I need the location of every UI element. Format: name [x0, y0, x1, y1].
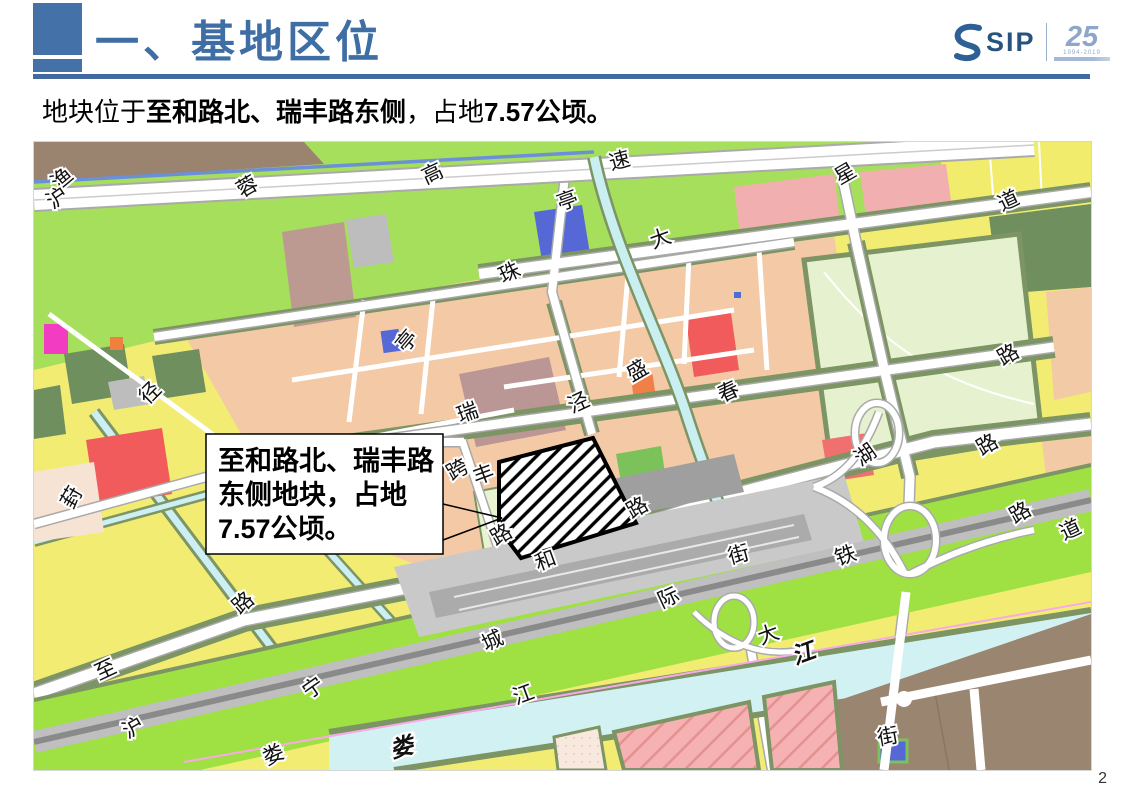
- land-use-map: 至和路北、瑞丰路东侧地块，占地7.57公顷。 渔沪蓉高速亭星道大珠亭路径葑瑞泾盛…: [33, 141, 1092, 771]
- sip-brand-text: SIP: [986, 27, 1036, 58]
- road-label: 街: [875, 724, 900, 750]
- header-accent-bar: [33, 59, 82, 72]
- page-number: 2: [1098, 770, 1107, 788]
- header-accent-square: [33, 3, 82, 55]
- subtitle-segment: 地块位于: [42, 97, 146, 127]
- sip-logo: SIP 25 1994-2019: [950, 16, 1110, 68]
- sip-swoosh-icon: [950, 22, 984, 62]
- subtitle-segment: 至和路北、瑞丰路东侧: [146, 97, 406, 127]
- callout-text-line: 至和路北、瑞丰路: [218, 445, 435, 476]
- anniversary-25: 25: [1066, 24, 1098, 50]
- header-rule: [33, 74, 1090, 79]
- slide-subtitle: 地块位于至和路北、瑞丰路东侧，占地7.57公顷。: [42, 92, 613, 129]
- callout-text-line: 7.57公顷。: [218, 514, 352, 544]
- subtitle-segment: ，占地: [406, 97, 484, 127]
- subtitle-segment: 7.57公顷。: [484, 97, 613, 127]
- anniversary-mark: 25 1994-2019: [1054, 24, 1110, 61]
- page-title: 一、基地区位: [95, 6, 383, 70]
- map-svg: 至和路北、瑞丰路东侧地块，占地7.57公顷。 渔沪蓉高速亭星道大珠亭路径葑瑞泾盛…: [34, 142, 1091, 770]
- callout-text-line: 东侧地块，占地: [218, 479, 407, 510]
- anniversary-caption-bar: [1054, 57, 1110, 61]
- anniversary-caption: 1994-2019: [1063, 50, 1101, 56]
